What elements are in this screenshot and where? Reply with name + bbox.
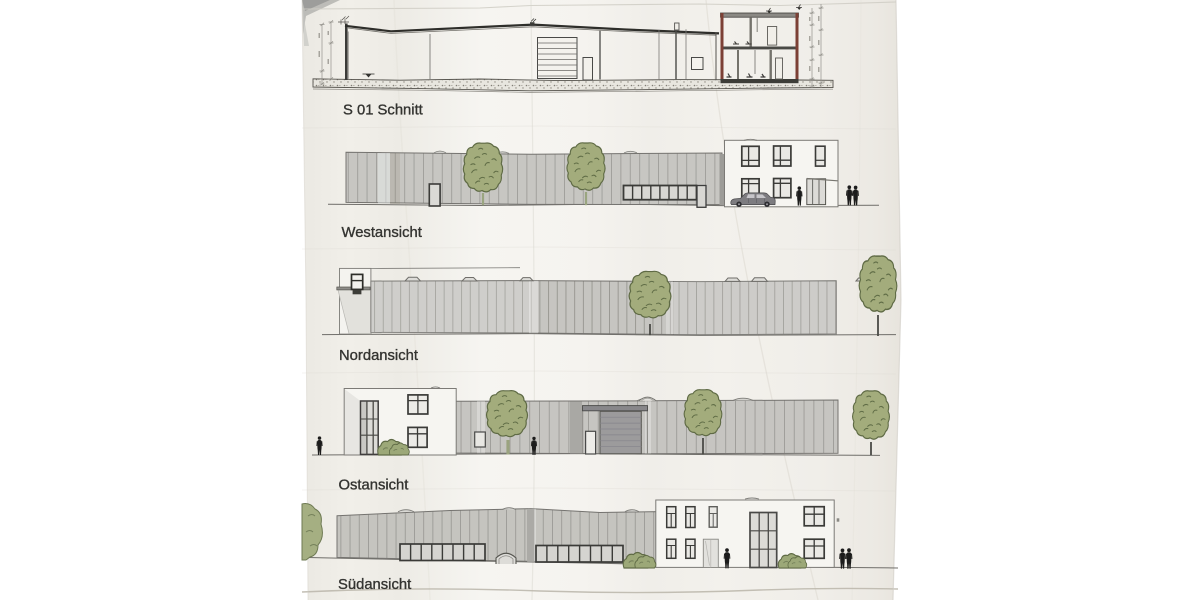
svg-text:Nordansicht: Nordansicht <box>339 348 418 364</box>
svg-text:Westansicht: Westansicht <box>342 225 422 241</box>
svg-text:S 01 Schnitt: S 01 Schnitt <box>343 103 423 119</box>
svg-text:Ostansicht: Ostansicht <box>339 477 409 493</box>
svg-text:Südansicht: Südansicht <box>338 577 411 593</box>
